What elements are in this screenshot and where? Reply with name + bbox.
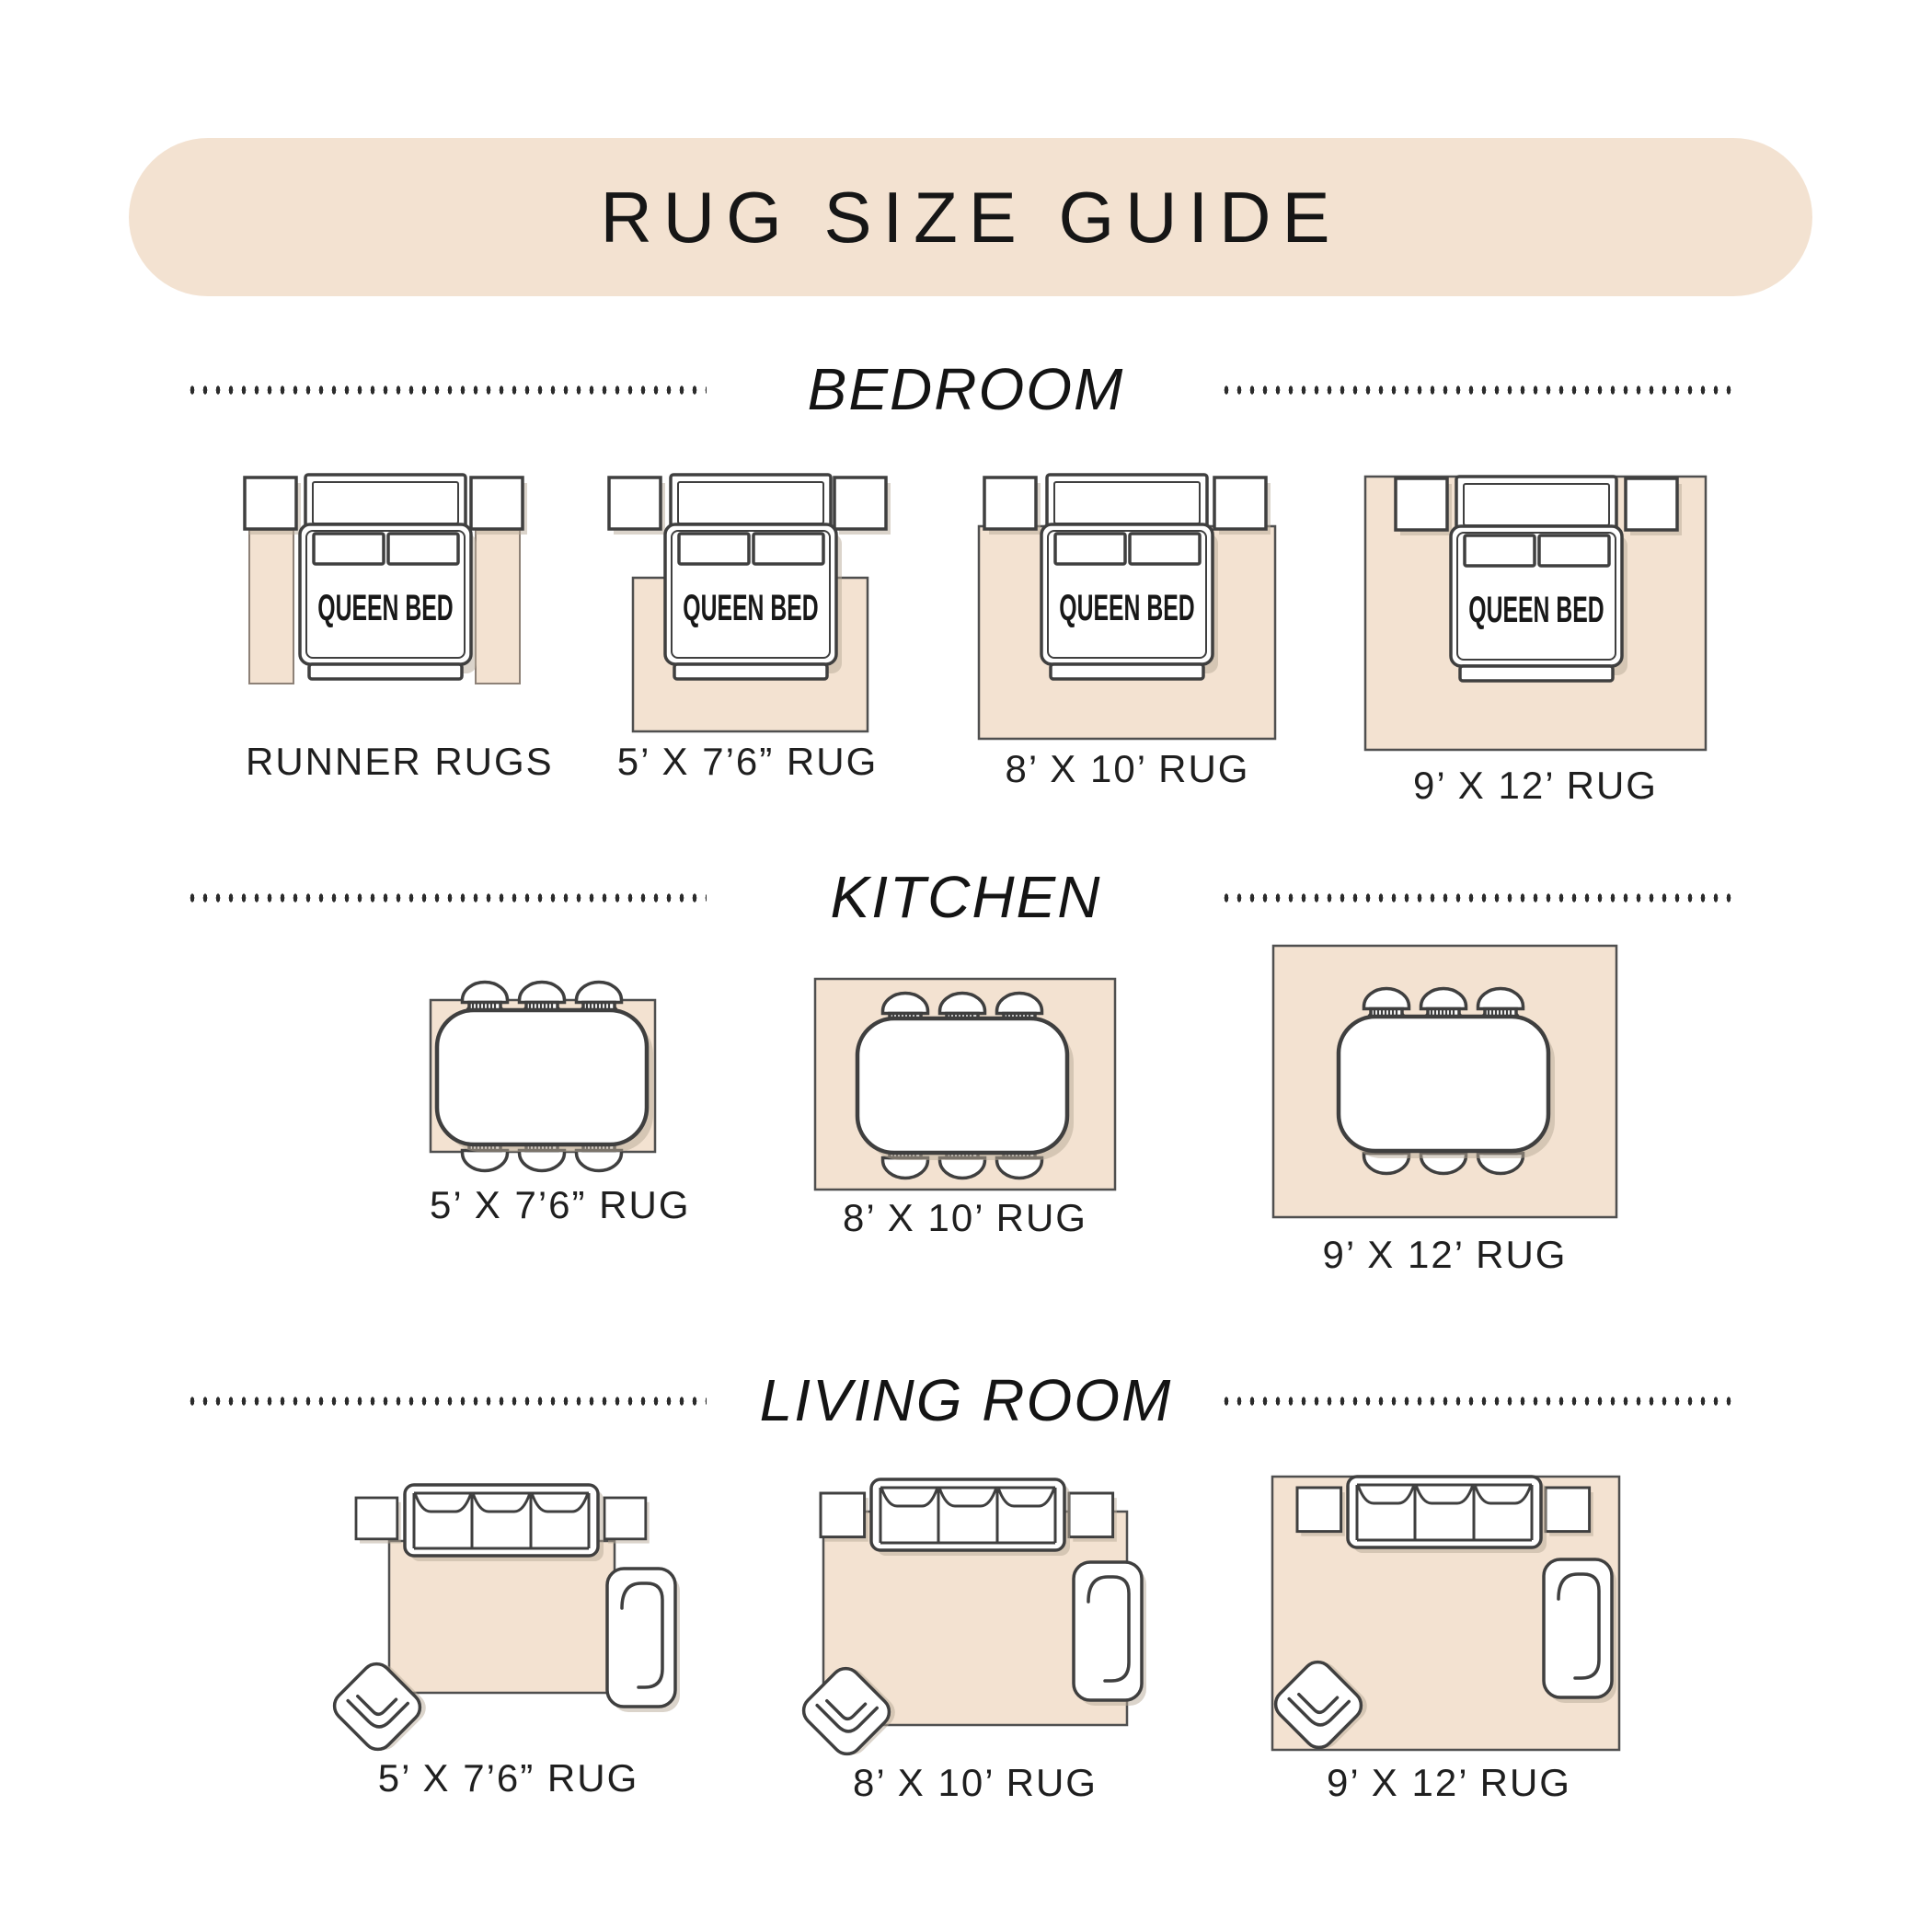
side-table-right bbox=[1546, 1488, 1593, 1536]
kitchen-8x10-illustration bbox=[814, 978, 1116, 1191]
side-table-icon bbox=[1069, 1493, 1117, 1542]
section-header-kitchen: KITCHEN bbox=[0, 865, 1932, 929]
nightstand-icon bbox=[1626, 478, 1682, 535]
rug-size-label: 5’ X 7’6” RUG bbox=[607, 742, 888, 781]
queen-bed-icon bbox=[1451, 477, 1627, 681]
living-5x76-cell: 5’ X 7’6” RUG bbox=[331, 1484, 685, 1798]
sofa-icon bbox=[871, 1479, 1070, 1556]
sofa-icon bbox=[405, 1485, 604, 1561]
rug-size-label: 5’ X 7’6” RUG bbox=[331, 1759, 685, 1798]
kitchen-5x76-illustration bbox=[430, 980, 656, 1175]
chaise-icon bbox=[1544, 1559, 1616, 1703]
rug bbox=[389, 1541, 615, 1693]
runner-rug-left bbox=[249, 530, 293, 684]
side-table-icon bbox=[604, 1498, 650, 1544]
kitchen-9x12-illustration bbox=[1272, 945, 1617, 1219]
bedroom-runner-cell: RUNNER RUGS bbox=[246, 475, 523, 781]
kitchen-9x12-cell: 9’ X 12’ RUG bbox=[1272, 945, 1617, 1274]
nightstand-icon bbox=[609, 477, 665, 535]
bedroom-9x12-illustration bbox=[1364, 475, 1707, 751]
side-table-icon bbox=[1297, 1488, 1345, 1536]
living-9x12-illustration bbox=[1270, 1472, 1628, 1759]
bedroom-8x10-cell: 8’ X 10’ RUG bbox=[978, 475, 1277, 788]
nightstand-icon bbox=[471, 477, 527, 535]
rug-size-label: 5’ X 7’6” RUG bbox=[430, 1186, 656, 1225]
side-table-icon bbox=[1546, 1488, 1593, 1536]
dotted-divider-right bbox=[1220, 385, 1737, 395]
kitchen-5x76-cell: 5’ X 7’6” RUG bbox=[430, 980, 656, 1225]
rug-size-label: 9’ X 12’ RUG bbox=[1272, 1236, 1617, 1274]
sofa-icon bbox=[1348, 1477, 1547, 1553]
nightstand-icon bbox=[1214, 477, 1271, 535]
runner-rug-right bbox=[476, 530, 520, 684]
chaise-icon bbox=[607, 1569, 680, 1712]
nightstand-icon bbox=[984, 477, 1041, 535]
queen-bed-icon bbox=[1041, 475, 1218, 679]
side-table-icon bbox=[356, 1498, 401, 1544]
dining-table-icon bbox=[1339, 1017, 1555, 1158]
nightstand-icon bbox=[245, 477, 301, 535]
queen-bed-icon bbox=[300, 475, 477, 679]
rug-size-label: 8’ X 10’ RUG bbox=[800, 1764, 1150, 1802]
living-9x12-cell: 9’ X 12’ RUG bbox=[1270, 1472, 1628, 1802]
chaise-icon bbox=[1074, 1562, 1146, 1706]
rug-size-label: RUNNER RUGS bbox=[246, 742, 523, 781]
section-header-living-room: LIVING ROOM bbox=[0, 1368, 1932, 1432]
living-5x76-illustration bbox=[331, 1484, 685, 1753]
rug-size-label: 8’ X 10’ RUG bbox=[978, 750, 1277, 788]
section-header-bedroom: BEDROOM bbox=[0, 357, 1932, 421]
side-table-icon bbox=[821, 1493, 868, 1542]
bedroom-runner-illustration bbox=[246, 475, 523, 685]
rug-size-guide-infographic: QUEEN BED bbox=[0, 0, 1932, 1932]
nightstand-icon bbox=[1396, 478, 1452, 535]
rug-size-label: 8’ X 10’ RUG bbox=[814, 1199, 1116, 1237]
living-8x10-cell: 8’ X 10’ RUG bbox=[800, 1477, 1150, 1802]
dining-table-icon bbox=[437, 1010, 653, 1152]
bedroom-8x10-illustration bbox=[978, 475, 1277, 740]
side-table-left bbox=[821, 1493, 868, 1542]
bedroom-5x76-cell: 5’ X 7’6” RUG bbox=[607, 475, 888, 781]
dotted-divider-right bbox=[1220, 893, 1737, 903]
rug-size-label: 9’ X 12’ RUG bbox=[1270, 1764, 1628, 1802]
bedroom-9x12-cell: 9’ X 12’ RUG bbox=[1364, 475, 1707, 805]
title-banner: RUG SIZE GUIDE bbox=[129, 138, 1812, 296]
side-table-left bbox=[1297, 1488, 1345, 1536]
side-table-right bbox=[1069, 1493, 1117, 1542]
rug-size-label: 9’ X 12’ RUG bbox=[1364, 766, 1707, 805]
bedroom-5x76-illustration bbox=[607, 475, 888, 732]
side-table-right bbox=[604, 1498, 650, 1544]
queen-bed-icon bbox=[665, 475, 842, 679]
side-table-left bbox=[356, 1498, 401, 1544]
living-8x10-illustration bbox=[800, 1477, 1150, 1754]
dining-table-icon bbox=[857, 1018, 1074, 1160]
page-title: RUG SIZE GUIDE bbox=[600, 176, 1340, 259]
dotted-divider-right bbox=[1220, 1397, 1737, 1406]
nightstand-icon bbox=[834, 477, 891, 535]
kitchen-8x10-cell: 8’ X 10’ RUG bbox=[814, 978, 1116, 1237]
